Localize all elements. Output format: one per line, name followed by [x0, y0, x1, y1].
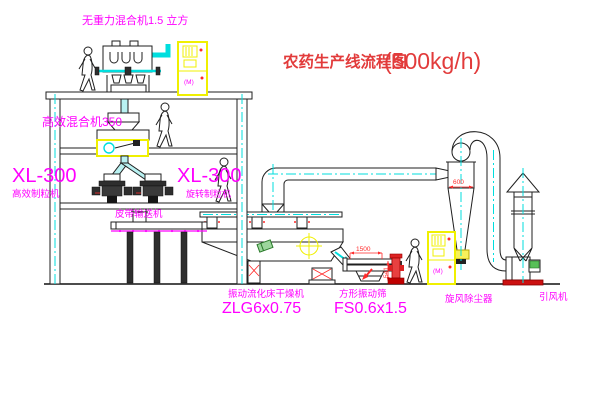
- person-figure: [406, 239, 422, 283]
- label-xl300-right: XL-300: [177, 165, 242, 187]
- label-granulator-right: 旋转制粒机: [186, 188, 231, 199]
- belt-conveyor: [111, 209, 207, 283]
- granulator-right: [133, 174, 173, 203]
- granulator-left: [92, 174, 132, 203]
- gravity-free-mixer: [95, 41, 168, 92]
- diagram-canvas: 1500 541 600: [0, 0, 600, 403]
- cabinet-motor-symbol: (M): [184, 79, 194, 86]
- label-fan: 引风机: [539, 291, 568, 303]
- label-sieve-model: FS0.6x1.5: [334, 300, 407, 317]
- label-top-mixer: 无重力混合机1.5 立方: [82, 13, 188, 27]
- control-cabinet-roof: (M): [178, 42, 207, 95]
- label-mixer-350: 高效混合机350: [42, 114, 122, 129]
- person-figure: [156, 103, 172, 147]
- title-capacity: (500kg/h): [384, 48, 481, 74]
- label-dryer-name: 振动流化床干燥机: [228, 288, 305, 300]
- process-flow-drawing: 1500 541 600: [0, 0, 600, 403]
- control-cabinet-right: (M): [428, 232, 455, 284]
- dryer-support-pedestal: [248, 261, 335, 284]
- label-sieve-name: 方形振动筛: [339, 288, 387, 300]
- dryer-exhaust-duct: [262, 164, 452, 212]
- label-belt-conveyor: 皮带输送机: [115, 208, 163, 220]
- label-cyclone: 旋风除尘器: [445, 293, 493, 305]
- label-granulator-left: 高效制粒机: [12, 188, 60, 200]
- fan-motor: [530, 261, 539, 268]
- fluid-bed-dryer: [200, 212, 352, 284]
- dryer-nozzles: [204, 217, 310, 228]
- label-dryer-model: ZLG6x0.75: [222, 300, 301, 317]
- cabinet-motor-symbol: (M): [433, 268, 443, 275]
- dimension-600: 600: [453, 179, 464, 186]
- person-figure: [79, 47, 95, 91]
- dimension-1500: 1500: [356, 246, 371, 253]
- label-xl300-left: XL-300: [12, 165, 77, 187]
